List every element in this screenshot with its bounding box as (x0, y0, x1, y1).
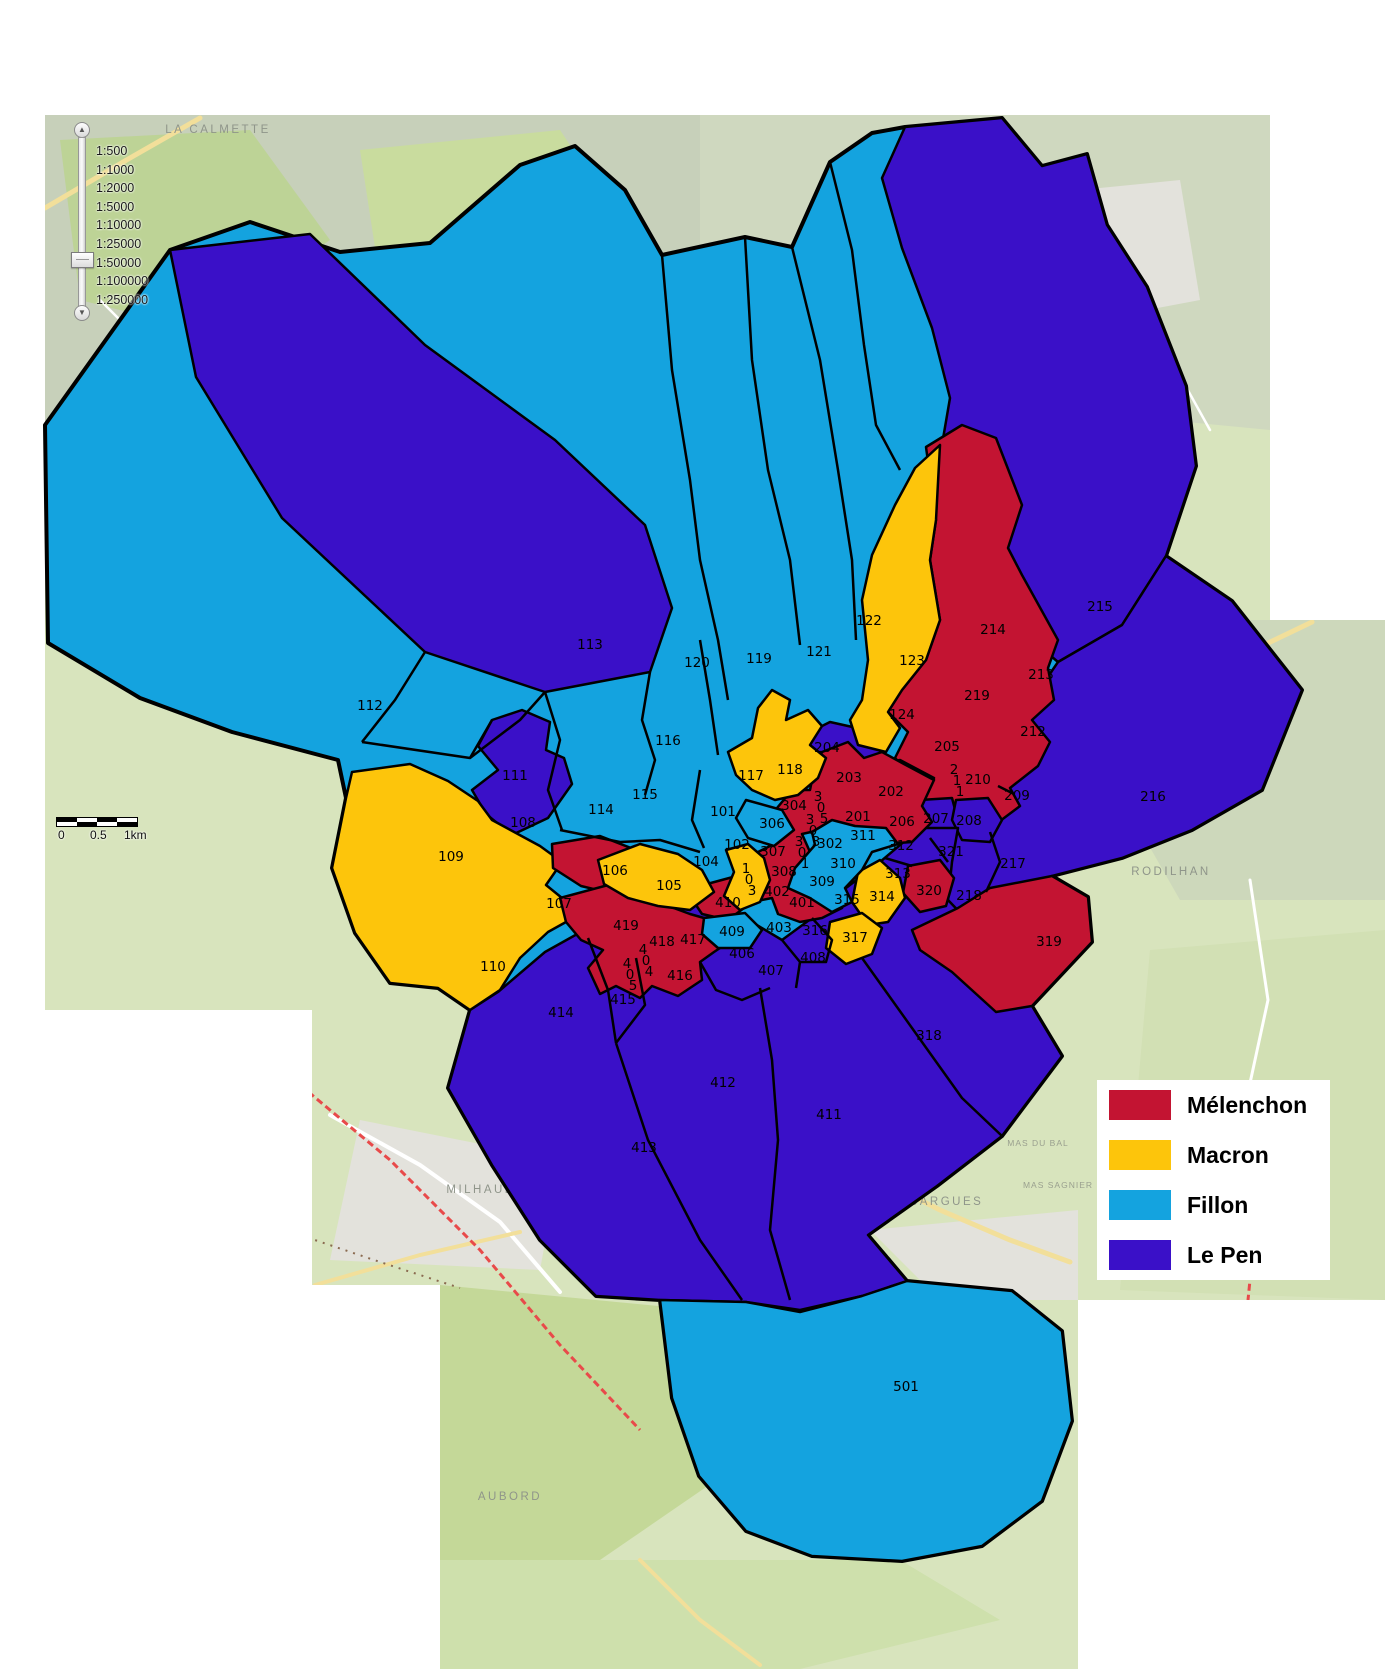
town-label: MAS SAGNIER (1023, 1180, 1093, 1190)
zoom-control: ▲ ▼ 1:5001:10001:20001:50001:100001:2500… (70, 118, 200, 323)
legend-label-macron: Macron (1187, 1142, 1269, 1169)
zoom-slider-handle[interactable] (71, 252, 94, 268)
district-label-306: 306 (759, 816, 785, 832)
district-label-118: 118 (777, 762, 803, 778)
zoom-scale-list: 1:5001:10001:20001:50001:100001:250001:5… (96, 142, 148, 309)
legend-swatch-lepen (1109, 1240, 1171, 1270)
zoom-scale-option[interactable]: 1:100000 (96, 272, 148, 291)
district-label-114: 114 (588, 802, 614, 818)
district-label-317: 317 (842, 930, 868, 946)
district-label-314: 314 (869, 889, 895, 905)
legend-entry-macron: Macron (1097, 1130, 1330, 1180)
district-label-205: 205 (934, 739, 960, 755)
legend-entry-fillon: Fillon (1097, 1180, 1330, 1230)
district-label-102: 102 (724, 837, 750, 853)
map-viewport: LA CALMETTEPOULXRODILHANCAISSARGUESMILHA… (0, 0, 1385, 1669)
scale-tick-05: 0.5 (90, 828, 107, 842)
legend: MélenchonMacronFillonLe Pen (1097, 1080, 1330, 1280)
district-label-215: 215 (1087, 599, 1113, 615)
district-label-315: 315 (834, 892, 860, 908)
district-label-302: 302 (817, 836, 843, 852)
district-label-217: 217 (1000, 856, 1026, 872)
zoom-in-button[interactable]: ▲ (74, 122, 90, 138)
legend-label-melenchon: Mélenchon (1187, 1092, 1307, 1119)
district-label-406: 406 (729, 946, 755, 962)
district-label-202: 202 (878, 784, 904, 800)
district-label-108: 108 (510, 815, 536, 831)
district-label-104: 104 (693, 854, 719, 870)
district-label-208: 208 (956, 813, 982, 829)
district-label-201: 201 (845, 809, 871, 825)
scale-bar: 0 0.5 1km (56, 817, 146, 845)
district-label-402: 402 (764, 884, 790, 900)
district-label-501: 501 (893, 1379, 919, 1395)
district-label-319: 319 (1036, 934, 1062, 950)
district-label-408: 408 (800, 950, 826, 966)
district-label-111: 111 (502, 768, 528, 784)
district-label-206: 206 (889, 814, 915, 830)
district-label-418: 418 (649, 934, 675, 950)
district-label-110: 110 (480, 959, 506, 975)
district-label-123: 123 (899, 653, 925, 669)
district-label-310: 310 (830, 856, 856, 872)
election-map[interactable]: LA CALMETTEPOULXRODILHANCAISSARGUESMILHA… (0, 0, 1385, 1669)
district-label-401: 401 (789, 895, 815, 911)
district-label-415: 415 (610, 992, 636, 1008)
district-label-117: 117 (738, 768, 764, 784)
town-label: AUBORD (478, 1491, 542, 1503)
district-label-116: 116 (655, 733, 681, 749)
district-label-307: 307 (760, 844, 786, 860)
district-label-124: 124 (889, 707, 915, 723)
district-label-113: 113 (577, 637, 603, 653)
legend-swatch-fillon (1109, 1190, 1171, 1220)
district-label-403: 403 (766, 920, 792, 936)
district-label-312: 312 (888, 838, 914, 854)
district-label-309: 309 (809, 874, 835, 890)
zoom-out-button[interactable]: ▼ (74, 305, 90, 321)
district-label-321: 321 (938, 844, 964, 860)
district-label-119: 119 (746, 651, 772, 667)
district-label-416: 416 (667, 968, 693, 984)
legend-swatch-macron (1109, 1140, 1171, 1170)
district-label-218: 218 (956, 888, 982, 904)
district-label-219: 219 (964, 688, 990, 704)
legend-swatch-melenchon (1109, 1090, 1171, 1120)
legend-entry-melenchon: Mélenchon (1097, 1080, 1330, 1130)
legend-entry-lepen: Le Pen (1097, 1230, 1330, 1280)
district-label-209: 209 (1004, 788, 1030, 804)
district-label-313: 313 (885, 866, 911, 882)
district-label-105: 105 (656, 878, 682, 894)
district-label-318: 318 (916, 1028, 942, 1044)
district-label-210: 210 (965, 772, 991, 788)
district-label-304: 304 (781, 798, 807, 814)
zoom-scale-option[interactable]: 1:1000 (96, 161, 148, 180)
zoom-scale-option[interactable]: 1:250000 (96, 291, 148, 310)
zoom-slider-track[interactable] (78, 137, 86, 307)
district-label-204: 204 (814, 740, 840, 756)
district-label-101: 101 (710, 804, 736, 820)
district-label-417: 417 (680, 932, 706, 948)
district-label-311: 311 (850, 828, 876, 844)
zoom-scale-option[interactable]: 1:2000 (96, 179, 148, 198)
district-label-320: 320 (916, 883, 942, 899)
district-label-207: 207 (923, 811, 949, 827)
town-label: RODILHAN (1131, 866, 1210, 878)
zoom-scale-option[interactable]: 1:25000 (96, 235, 148, 254)
district-label-107: 107 (546, 896, 572, 912)
district-label-203: 203 (836, 770, 862, 786)
district-label-115: 115 (632, 787, 658, 803)
district-label-213: 213 (1028, 667, 1054, 683)
zoom-scale-option[interactable]: 1:50000 (96, 254, 148, 273)
district-label-308: 308 (771, 864, 797, 880)
district-label-214: 214 (980, 622, 1006, 638)
zoom-scale-option[interactable]: 1:10000 (96, 216, 148, 235)
district-label-419: 419 (613, 918, 639, 934)
district-label-414: 414 (548, 1005, 574, 1021)
district-label-120: 120 (684, 655, 710, 671)
district-label-216: 216 (1140, 789, 1166, 805)
district-label-112: 112 (357, 698, 383, 714)
district-label-409: 409 (719, 924, 745, 940)
district-label-122: 122 (856, 613, 882, 629)
zoom-scale-option[interactable]: 1:5000 (96, 198, 148, 217)
district-label-106: 106 (602, 863, 628, 879)
scale-tick-1km: 1km (124, 828, 147, 842)
district-label-410: 410 (715, 895, 741, 911)
district-label-109: 109 (438, 849, 464, 865)
district-label-121: 121 (806, 644, 832, 660)
district-label-411: 411 (816, 1107, 842, 1123)
legend-label-fillon: Fillon (1187, 1192, 1248, 1219)
district-label-316: 316 (802, 923, 828, 939)
scale-bar-graphic (56, 817, 138, 827)
district-label-212: 212 (1020, 724, 1046, 740)
legend-label-lepen: Le Pen (1187, 1242, 1262, 1269)
scale-tick-0: 0 (58, 828, 65, 842)
district-label-413: 413 (631, 1140, 657, 1156)
district-label-407: 407 (758, 963, 784, 979)
zoom-scale-option[interactable]: 1:500 (96, 142, 148, 161)
town-label: MAS DU BAL (1007, 1138, 1069, 1148)
district-label-412: 412 (710, 1075, 736, 1091)
